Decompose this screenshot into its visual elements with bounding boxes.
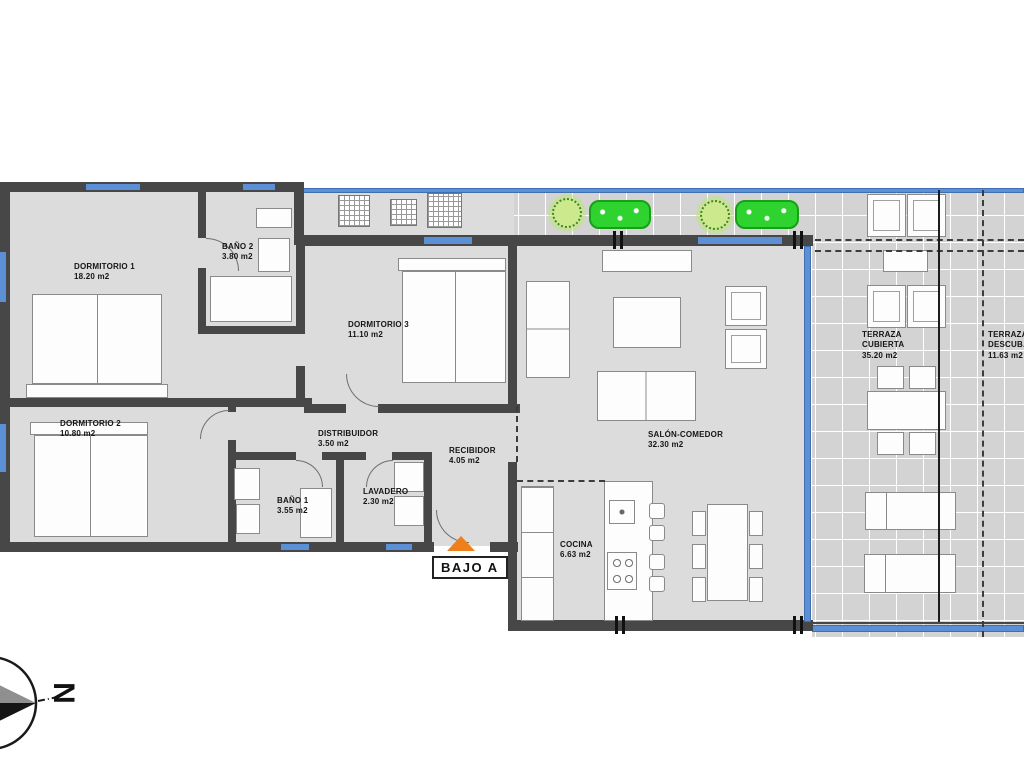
- armchair: [725, 286, 767, 326]
- coffee-table: [613, 297, 681, 348]
- dining-chair: [749, 577, 763, 602]
- outdoor-armchair: [867, 194, 906, 237]
- dining-table: [707, 504, 748, 601]
- cushion: [873, 291, 900, 322]
- wall-segment: [0, 398, 312, 407]
- wall-segment: [490, 542, 518, 552]
- cooktop: [607, 552, 637, 590]
- room-area: 2.30 m2: [363, 497, 408, 507]
- outdoor-table: [867, 391, 946, 430]
- sofa: [526, 281, 570, 378]
- cushion: [873, 200, 900, 231]
- plant-hedge: [589, 200, 651, 229]
- bed-headboard: [26, 384, 168, 398]
- armchair: [725, 329, 767, 369]
- room-area: 35.20 m2: [862, 351, 914, 361]
- room-name: BAÑO 1: [277, 496, 308, 506]
- bed-headboard: [398, 258, 506, 271]
- window: [86, 184, 140, 190]
- room-label-terraza-cubierta: TERRAZA CUBIERTA 35.20 m2: [862, 330, 914, 361]
- outdoor-coffee-table: [883, 250, 928, 272]
- dining-chair: [749, 544, 763, 569]
- bathroom-sink: [256, 208, 292, 228]
- outdoor-armchair: [907, 194, 946, 237]
- wall-segment: [198, 326, 302, 334]
- room-name: RECIBIDOR: [449, 446, 496, 456]
- unit-label: BAJO A: [432, 556, 508, 579]
- wall-tick-marker: [613, 616, 627, 634]
- room-name: DORMITORIO 3: [348, 320, 409, 330]
- stool: [649, 525, 665, 541]
- dining-chair: [749, 511, 763, 536]
- wall-tick-marker: [791, 231, 805, 249]
- room-area: 32.30 m2: [648, 440, 723, 450]
- toilet: [258, 238, 290, 272]
- kitchen-sink: [609, 500, 635, 524]
- wall-segment: [198, 268, 206, 332]
- room-label-bano-1: BAÑO 1 3.55 m2: [277, 496, 308, 517]
- window: [243, 184, 275, 190]
- cushion: [731, 292, 761, 320]
- wall-tick-marker: [791, 616, 805, 634]
- terrace-zone-divider: [982, 190, 984, 637]
- room-name: DORMITORIO 2: [60, 419, 121, 429]
- wall-segment: [294, 182, 304, 245]
- window: [386, 544, 412, 550]
- wall-segment: [0, 182, 10, 552]
- wall-segment: [424, 542, 434, 552]
- plant-bush: [552, 198, 582, 228]
- window: [424, 237, 472, 244]
- sliding-window: [698, 237, 782, 244]
- room-area: 3.55 m2: [277, 506, 308, 516]
- outdoor-armchair: [867, 285, 906, 328]
- window: [0, 424, 6, 472]
- window: [281, 544, 309, 550]
- wall-segment: [198, 192, 206, 238]
- bed-mattress: [32, 294, 98, 384]
- plant-bush: [700, 200, 730, 230]
- wall-segment: [228, 398, 236, 412]
- wall-segment: [228, 452, 296, 460]
- room-label-salon-comedor: SALÓN-COMEDOR 32.30 m2: [648, 430, 723, 451]
- outdoor-chair: [877, 432, 904, 455]
- cushion: [731, 335, 761, 363]
- terrace-grate: [390, 199, 417, 226]
- roof-support-line: [938, 190, 940, 622]
- bed-mattress: [402, 271, 456, 383]
- room-area: 10.80 m2: [60, 429, 121, 439]
- bed-mattress: [34, 435, 91, 537]
- room-area: 3.50 m2: [318, 439, 378, 449]
- sideboard: [602, 250, 692, 272]
- bed-mattress: [97, 294, 162, 384]
- room-label-bano-2: BAÑO 2 3.80 m2: [222, 242, 253, 263]
- plant-hedge: [735, 200, 799, 229]
- room-name: TERRAZA CUBIERTA: [862, 330, 914, 351]
- outdoor-chair: [877, 366, 904, 389]
- shower-tray: [210, 276, 292, 322]
- room-area: 11.10 m2: [348, 330, 409, 340]
- room-label-recibidor: RECIBIDOR 4.05 m2: [449, 446, 496, 467]
- open-boundary-line: [517, 480, 605, 482]
- bed-mattress: [455, 271, 506, 383]
- outdoor-armchair: [907, 285, 946, 328]
- stool: [649, 576, 665, 592]
- kitchen-counter: [521, 486, 554, 621]
- dining-chair: [692, 544, 706, 569]
- bed-mattress: [90, 435, 148, 537]
- room-label-terraza-descubierta: TERRAZA DESCUB. 11.63 m2: [988, 330, 1024, 361]
- room-label-dormitorio-3: DORMITORIO 3 11.10 m2: [348, 320, 409, 341]
- wall-segment: [296, 246, 305, 334]
- room-label-cocina: COCINA 6.63 m2: [560, 540, 593, 561]
- wall-segment: [322, 452, 366, 460]
- outdoor-chair: [909, 432, 936, 455]
- dining-chair: [692, 577, 706, 602]
- room-name: DISTRIBUIDOR: [318, 429, 378, 439]
- roof-edge-dashed-line: [815, 250, 1024, 252]
- room-name: SALÓN-COMEDOR: [648, 430, 723, 440]
- balustrade-bottom: [812, 625, 1024, 632]
- stool: [649, 503, 665, 519]
- entrance-arrow-icon: [447, 536, 475, 551]
- sofa: [597, 371, 696, 421]
- room-area: 3.80 m2: [222, 252, 253, 262]
- sun-lounger: [865, 492, 956, 530]
- terrace-grate: [338, 195, 370, 227]
- open-boundary-line: [516, 406, 518, 462]
- cushion: [913, 200, 940, 231]
- dining-chair: [692, 511, 706, 536]
- sun-lounger: [864, 554, 956, 593]
- wall-segment: [508, 620, 813, 631]
- bathroom-sink: [234, 468, 260, 500]
- glass-sliding-door: [804, 246, 811, 622]
- stool: [649, 554, 665, 570]
- cushion: [913, 291, 940, 322]
- balustrade-top: [302, 188, 1024, 193]
- room-name: COCINA: [560, 540, 593, 550]
- window: [0, 252, 6, 302]
- room-area: 11.63 m2: [988, 351, 1024, 361]
- north-letter: N: [46, 682, 80, 704]
- north-compass-icon: [0, 646, 120, 766]
- wall-segment: [378, 404, 520, 413]
- roof-edge-dashed-line: [815, 239, 1024, 241]
- room-area: 18.20 m2: [74, 272, 135, 282]
- room-area: 6.63 m2: [560, 550, 593, 560]
- wall-tick-marker: [611, 231, 625, 249]
- wall-segment: [424, 452, 432, 550]
- unit-label-text: BAJO A: [441, 560, 499, 575]
- room-name: DORMITORIO 1: [74, 262, 135, 272]
- floor-plan-canvas: DORMITORIO 1 18.20 m2 BAÑO 2 3.80 m2 DOR…: [0, 0, 1024, 768]
- room-label-dormitorio-2: DORMITORIO 2 10.80 m2: [60, 419, 121, 440]
- room-name: BAÑO 2: [222, 242, 253, 252]
- outdoor-chair: [909, 366, 936, 389]
- terrace-bottom-edge: [812, 622, 1024, 624]
- room-label-lavadero: LAVADERO 2.30 m2: [363, 487, 408, 508]
- wall-segment: [0, 542, 434, 552]
- toilet: [236, 504, 260, 534]
- room-area: 4.05 m2: [449, 456, 496, 466]
- room-name: LAVADERO: [363, 487, 408, 497]
- room-name: TERRAZA DESCUB.: [988, 330, 1024, 351]
- terrace-grate: [427, 193, 462, 228]
- room-label-distribuidor: DISTRIBUIDOR 3.50 m2: [318, 429, 378, 450]
- wall-segment: [304, 404, 346, 413]
- wall-segment: [508, 246, 517, 406]
- room-label-dormitorio-1: DORMITORIO 1 18.20 m2: [74, 262, 135, 283]
- wall-segment: [336, 452, 344, 550]
